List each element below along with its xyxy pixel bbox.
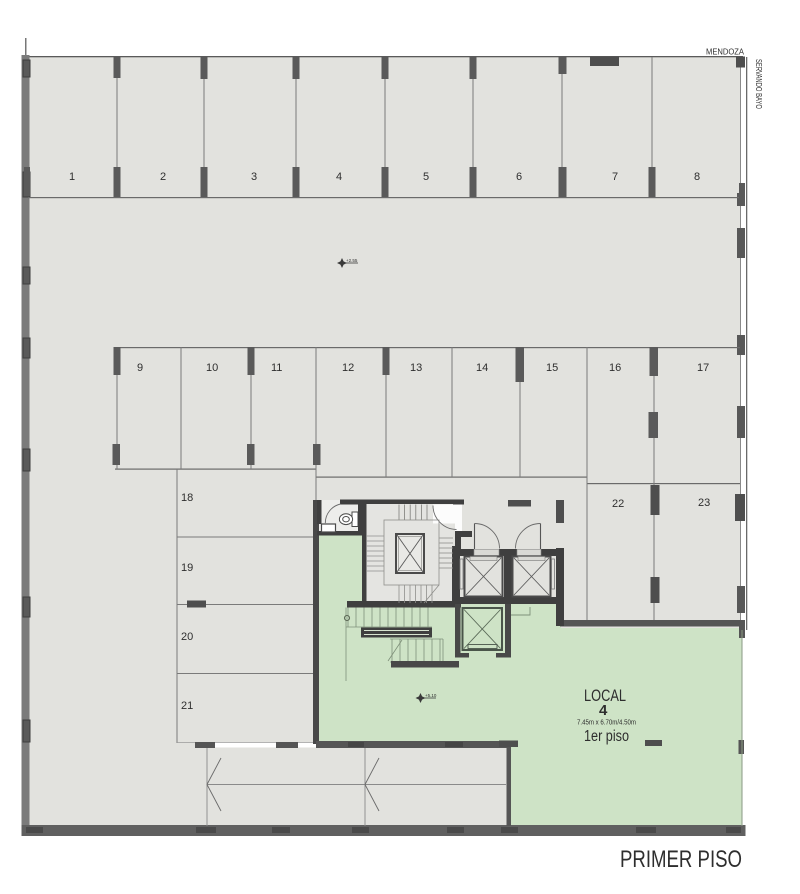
svg-text:8: 8 bbox=[694, 171, 700, 183]
svg-text:19: 19 bbox=[181, 562, 193, 574]
svg-text:23: 23 bbox=[698, 497, 710, 509]
svg-text:17: 17 bbox=[697, 362, 709, 374]
svg-text:21: 21 bbox=[181, 700, 193, 712]
svg-text:3: 3 bbox=[251, 171, 257, 183]
svg-text:10: 10 bbox=[206, 362, 218, 374]
svg-text:13: 13 bbox=[410, 362, 422, 374]
svg-text:PRIMER PISO: PRIMER PISO bbox=[620, 846, 742, 873]
svg-text:16: 16 bbox=[609, 362, 621, 374]
svg-text:7.45m x 6.70m/4.50m: 7.45m x 6.70m/4.50m bbox=[577, 720, 636, 727]
svg-text:22: 22 bbox=[612, 498, 624, 510]
svg-text:1: 1 bbox=[69, 171, 75, 183]
svg-text:SERVANDO BAYO: SERVANDO BAYO bbox=[754, 59, 763, 109]
svg-text:4: 4 bbox=[599, 702, 608, 719]
svg-text:7: 7 bbox=[612, 171, 618, 183]
svg-text:2: 2 bbox=[160, 171, 166, 183]
svg-text:18: 18 bbox=[181, 492, 193, 504]
svg-text:14: 14 bbox=[476, 362, 488, 374]
svg-text:1er piso: 1er piso bbox=[584, 728, 629, 745]
svg-text:9: 9 bbox=[137, 362, 143, 374]
svg-text:12: 12 bbox=[342, 362, 354, 374]
svg-text:4: 4 bbox=[336, 171, 342, 183]
svg-text:5: 5 bbox=[423, 171, 429, 183]
svg-text:MENDOZA: MENDOZA bbox=[706, 48, 745, 57]
svg-text:+5.10: +5.10 bbox=[425, 693, 437, 698]
svg-text:+2.55: +2.55 bbox=[346, 258, 358, 263]
svg-text:6: 6 bbox=[516, 171, 522, 183]
svg-text:20: 20 bbox=[181, 631, 193, 643]
svg-text:11: 11 bbox=[271, 362, 282, 374]
svg-text:15: 15 bbox=[546, 362, 558, 374]
